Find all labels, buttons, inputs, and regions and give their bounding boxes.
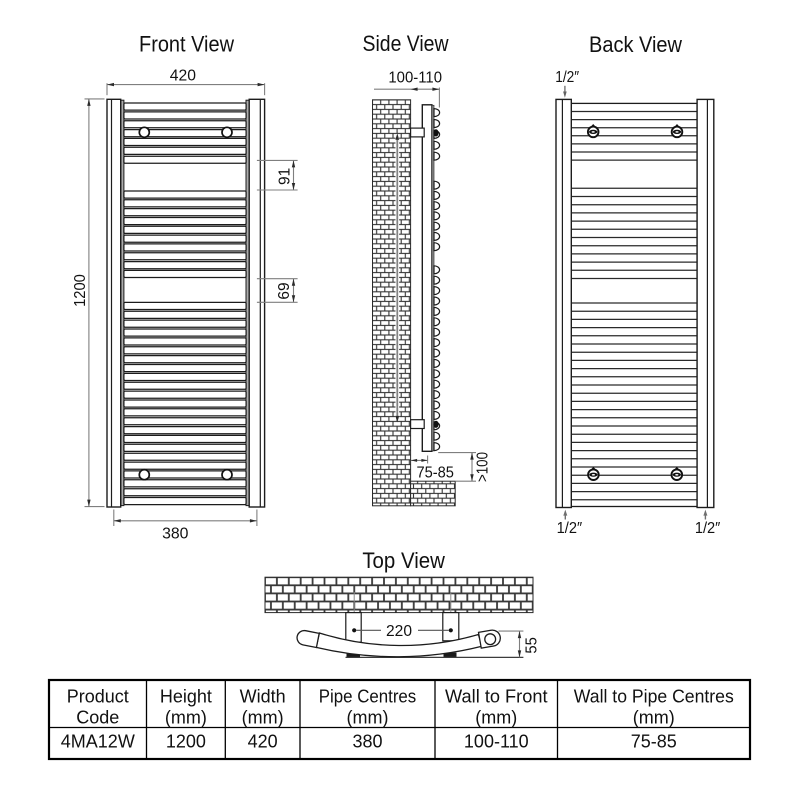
svg-text:69: 69 (276, 282, 293, 299)
svg-text:220: 220 (386, 623, 412, 640)
svg-text:55: 55 (524, 637, 541, 654)
svg-text:Top View: Top View (362, 548, 445, 573)
svg-text:Front View: Front View (139, 32, 234, 57)
svg-text:4MA12W: 4MA12W (61, 731, 135, 751)
svg-text:(mm): (mm) (242, 708, 284, 728)
svg-text:(mm): (mm) (633, 708, 675, 728)
svg-text:1/2″: 1/2″ (557, 520, 583, 537)
svg-text:420: 420 (170, 67, 197, 84)
svg-text:Side View: Side View (363, 31, 449, 56)
svg-text:380: 380 (352, 731, 382, 751)
svg-text:Pipe Centres: Pipe Centres (319, 687, 417, 707)
svg-text:Width: Width (240, 687, 286, 707)
svg-text:>100: >100 (475, 452, 492, 482)
svg-text:100-110: 100-110 (388, 69, 442, 86)
svg-text:(mm): (mm) (475, 708, 517, 728)
svg-text:420: 420 (248, 731, 278, 751)
svg-text:Product: Product (67, 687, 129, 707)
svg-text:91: 91 (276, 168, 293, 185)
svg-text:1200: 1200 (72, 274, 89, 307)
svg-text:100-110: 100-110 (464, 731, 529, 751)
svg-text:(mm): (mm) (347, 708, 389, 728)
svg-text:75-85: 75-85 (631, 731, 677, 751)
svg-text:1/2″: 1/2″ (555, 69, 579, 86)
svg-text:Wall to Front: Wall to Front (445, 687, 548, 707)
svg-text:Wall to Pipe Centres: Wall to Pipe Centres (574, 687, 734, 707)
svg-text:Height: Height (160, 687, 212, 707)
svg-text:380: 380 (162, 526, 189, 543)
svg-text:Back View: Back View (589, 32, 682, 57)
svg-text:1/2″: 1/2″ (695, 520, 721, 537)
svg-text:(mm): (mm) (165, 708, 207, 728)
svg-text:1200: 1200 (166, 731, 206, 751)
svg-text:Code: Code (76, 708, 119, 728)
svg-text:75-85: 75-85 (416, 465, 454, 482)
